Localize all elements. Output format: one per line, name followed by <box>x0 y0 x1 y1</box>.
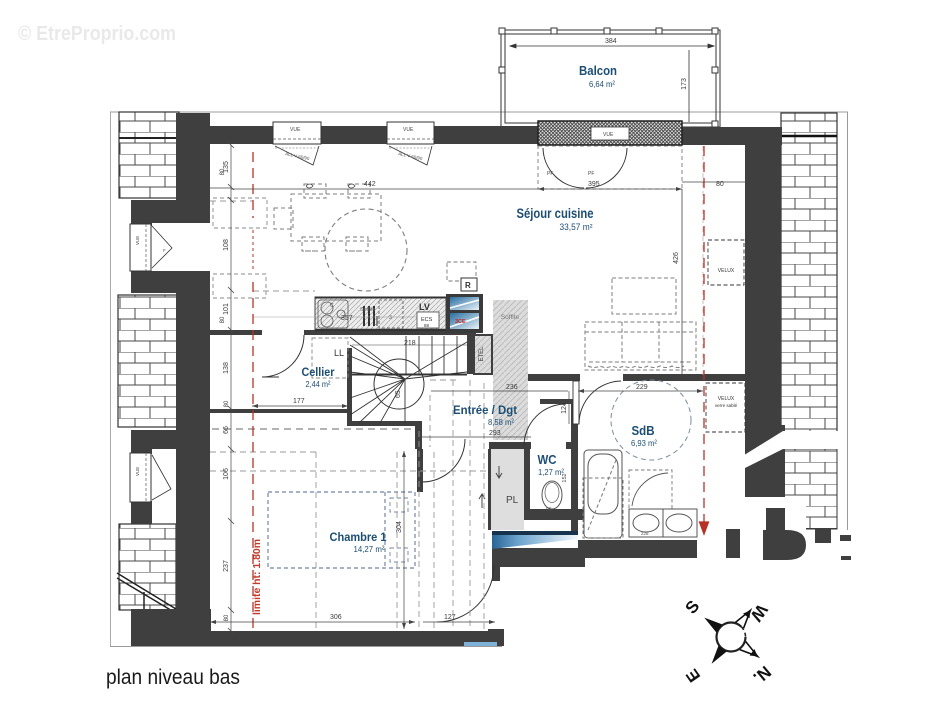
svg-text:80: 80 <box>224 614 230 621</box>
svg-text:80: 80 <box>220 316 226 323</box>
svg-text:395: 395 <box>588 181 600 188</box>
svg-text:VUE: VUE <box>403 127 414 133</box>
svg-text:ETEL: ETEL <box>479 346 485 362</box>
svg-text:14,27 m²: 14,27 m² <box>354 544 385 554</box>
svg-text:306: 306 <box>330 614 342 621</box>
svg-text:80: 80 <box>220 168 226 175</box>
svg-text:3: 3 <box>389 315 392 321</box>
svg-text:80: 80 <box>716 181 724 188</box>
svg-text:SdB: SdB <box>632 423 655 438</box>
svg-text:© EtreProprio.com: © EtreProprio.com <box>18 23 176 45</box>
svg-text:VUE: VUE <box>603 132 614 138</box>
svg-text:2,44 m²: 2,44 m² <box>306 379 331 389</box>
svg-text:127: 127 <box>444 614 456 621</box>
svg-text:R: R <box>465 281 471 290</box>
svg-text:VELUX: VELUX <box>718 268 735 274</box>
svg-text:PF: PF <box>547 171 553 177</box>
svg-text:1,27 m²: 1,27 m² <box>538 467 564 477</box>
svg-text:Chambre 1: Chambre 1 <box>330 530 387 544</box>
svg-text:138: 138 <box>223 362 230 374</box>
svg-text:6,93 m²: 6,93 m² <box>631 438 657 448</box>
svg-text:33,57 m²: 33,57 m² <box>560 222 593 232</box>
svg-text:80: 80 <box>224 400 230 407</box>
svg-text:Balcon: Balcon <box>579 63 617 78</box>
svg-text:Cellier: Cellier <box>302 365 335 379</box>
svg-text:8,58 m²: 8,58 m² <box>488 417 514 427</box>
svg-text:Entrée / Dgt: Entrée / Dgt <box>453 403 517 417</box>
svg-text:WC: WC <box>538 452 558 467</box>
svg-text:96: 96 <box>546 507 552 513</box>
svg-text:Soffite: Soffite <box>501 314 520 321</box>
svg-text:237: 237 <box>223 560 230 572</box>
svg-text:65: 65 <box>395 390 402 398</box>
svg-text:6,64 m²: 6,64 m² <box>589 79 615 89</box>
svg-text:101: 101 <box>223 303 230 315</box>
svg-text:108: 108 <box>223 239 230 251</box>
svg-text:VELUX: VELUX <box>718 396 735 402</box>
svg-text:LL: LL <box>334 348 344 358</box>
svg-text:F: F <box>163 248 166 253</box>
svg-text:124: 124 <box>561 402 568 414</box>
svg-text:VUE: VUE <box>290 127 301 133</box>
svg-text:218: 218 <box>404 340 416 347</box>
svg-text:PF: PF <box>588 171 594 177</box>
svg-text:106: 106 <box>223 468 230 480</box>
svg-text:PL: PL <box>506 495 519 506</box>
svg-text:66: 66 <box>223 426 230 434</box>
svg-text:VUE: VUE <box>135 467 140 476</box>
svg-text:304: 304 <box>396 521 403 533</box>
svg-text:177: 177 <box>293 398 305 405</box>
svg-text:3CE: 3CE <box>455 319 466 325</box>
svg-text:C: C <box>330 303 334 309</box>
svg-text:293: 293 <box>489 430 501 437</box>
svg-text:LV: LV <box>419 302 430 312</box>
svg-text:228: 228 <box>641 531 649 536</box>
svg-text:verre sablé: verre sablé <box>715 403 738 408</box>
svg-text:VUE: VUE <box>135 236 140 245</box>
svg-text:limite ht: 1.80m: limite ht: 1.80m <box>251 539 263 615</box>
svg-text:236: 236 <box>506 384 518 391</box>
svg-text:229: 229 <box>636 384 648 391</box>
svg-text:357: 357 <box>341 315 353 322</box>
svg-text:Séjour cuisine: Séjour cuisine <box>517 206 594 221</box>
svg-text:442: 442 <box>364 181 376 188</box>
svg-text:426: 426 <box>673 252 680 264</box>
svg-text:plan niveau bas: plan niveau bas <box>106 666 240 689</box>
svg-text:173: 173 <box>681 78 688 90</box>
svg-text:Soffite: Soffite <box>360 307 376 313</box>
svg-text:384: 384 <box>605 38 617 45</box>
svg-text:88: 88 <box>424 323 430 328</box>
